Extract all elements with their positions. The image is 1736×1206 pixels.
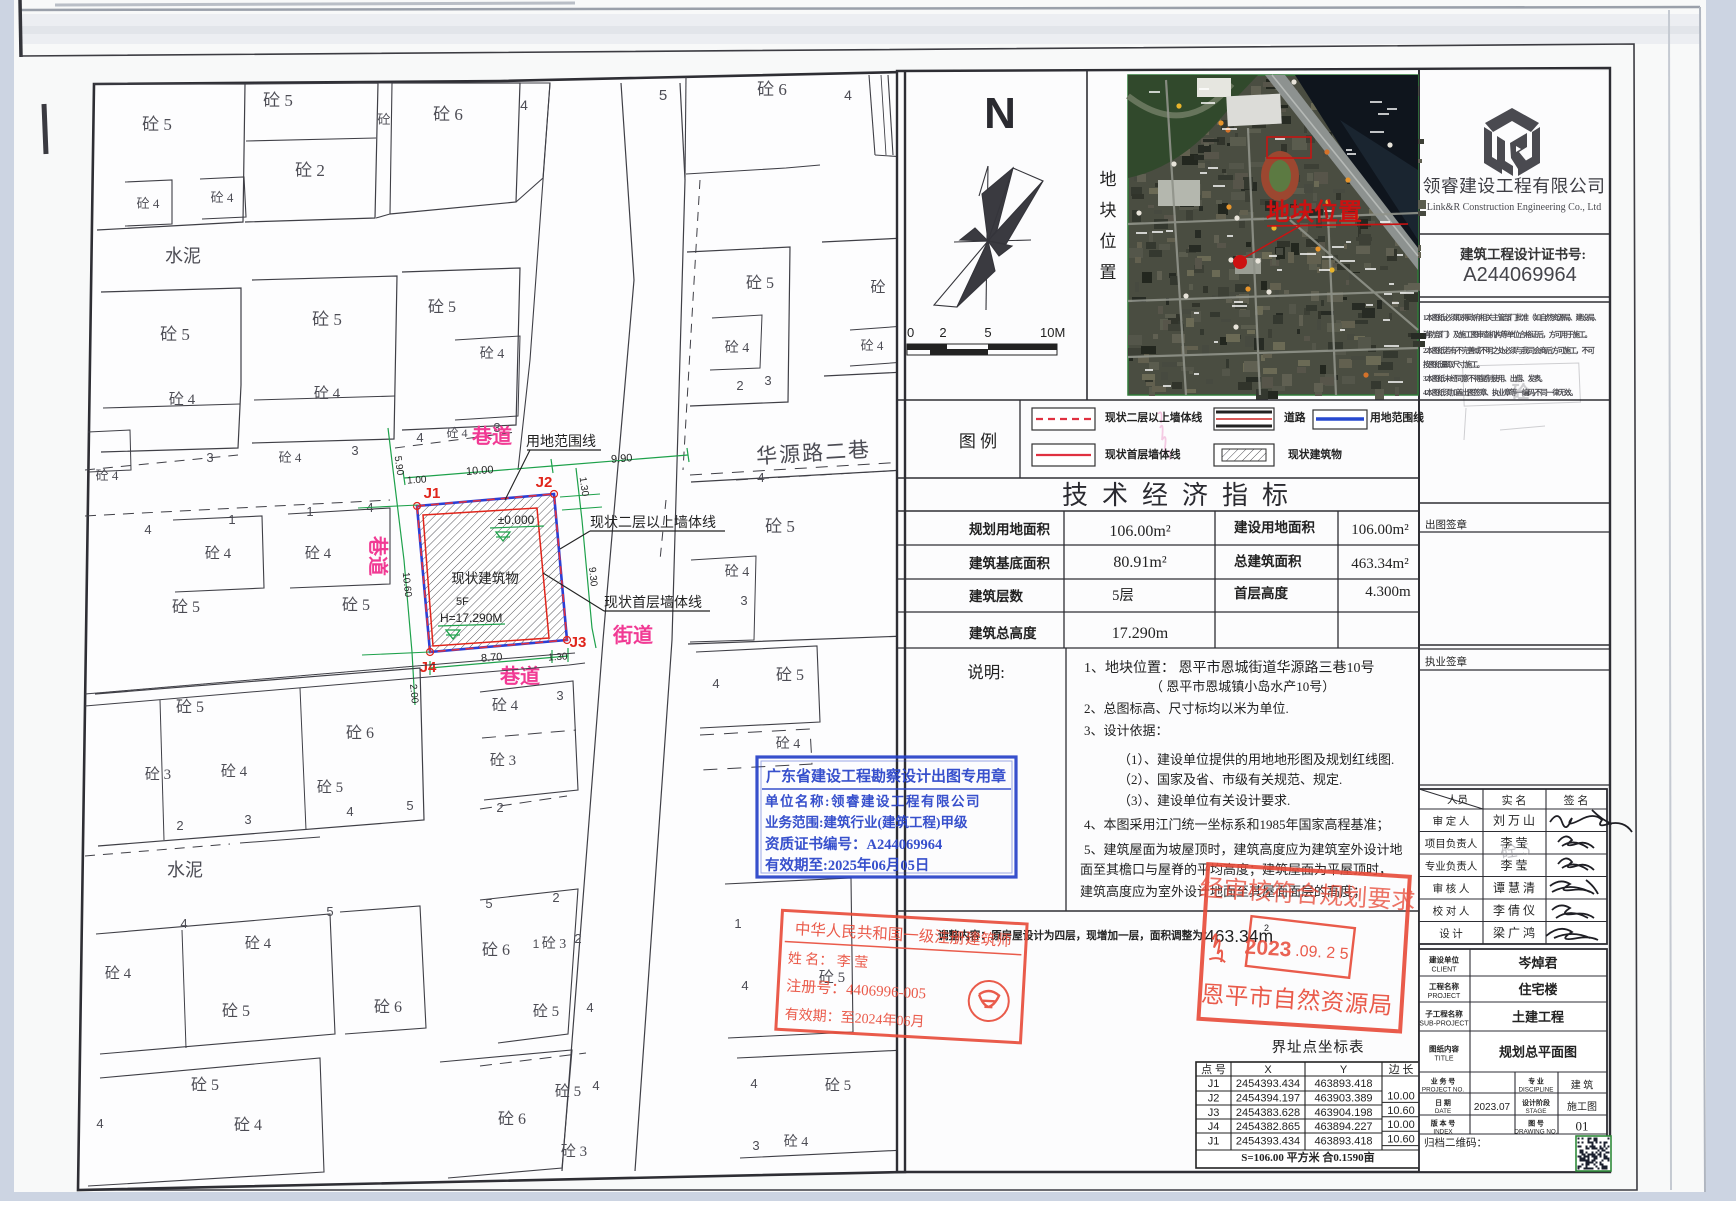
svg-text:砼 4: 砼 4 (211, 187, 234, 206)
svg-text:校 对 人: 校 对 人 (1433, 903, 1470, 918)
svg-text:4: 4 (750, 1076, 757, 1091)
svg-text:S=106.00 平方米 合0.1590亩: S=106.00 平方米 合0.1590亩 (1241, 1149, 1374, 1165)
svg-text:（3）、建设单位有关设计要求.: （3）、建设单位有关设计要求. (1118, 790, 1290, 809)
svg-text:J3: J3 (1208, 1107, 1220, 1119)
svg-text:砼 5: 砼 5 (342, 591, 370, 615)
svg-text:2: 2 (176, 818, 183, 833)
svg-text:2: 2 (736, 378, 743, 393)
svg-text:砼 4: 砼 4 (480, 343, 505, 363)
svg-text:3: 3 (764, 373, 771, 388)
svg-text:人员: 人员 (1447, 792, 1468, 807)
svg-text:1、地块位置： 恩平市恩城街道华源路三巷10号: 1、地块位置： 恩平市恩城街道华源路三巷10号 (1084, 657, 1375, 677)
svg-text:砼 4: 砼 4 (169, 388, 196, 409)
svg-text:STAGE: STAGE (1526, 1108, 1547, 1115)
svg-text:1.30: 1.30 (548, 651, 569, 663)
svg-text:业 务 号: 业 务 号 (1431, 1077, 1456, 1087)
svg-text:出图签章: 出图签章 (1425, 517, 1467, 532)
svg-text:砼 5: 砼 5 (765, 512, 795, 537)
svg-text:砼 5: 砼 5 (428, 293, 456, 317)
svg-text:10.00: 10.00 (1387, 1119, 1415, 1131)
svg-text:4: 4 (416, 430, 423, 445)
svg-text:现状二层以上墙体线: 现状二层以上墙体线 (590, 512, 716, 532)
svg-text:巷道: 巷道 (471, 420, 512, 449)
svg-text:2.00: 2.00 (407, 683, 420, 704)
svg-text:J1: J1 (1208, 1136, 1220, 1148)
svg-text:3: 3 (351, 443, 358, 458)
svg-text:砼 5: 砼 5 (222, 997, 250, 1021)
svg-text:建筑工程设计证书号:: 建筑工程设计证书号: (1459, 243, 1586, 263)
svg-text:边 长: 边 长 (1389, 1061, 1414, 1077)
svg-text:1: 1 (228, 512, 235, 527)
svg-text:建筑基底面积: 建筑基底面积 (968, 552, 1050, 572)
svg-text:2454393.434: 2454393.434 (1236, 1136, 1300, 1148)
svg-text:领睿建设工程有限公司: 领睿建设工程有限公司 (1423, 172, 1606, 198)
svg-text:巷道: 巷道 (365, 535, 394, 576)
svg-text:砼 4: 砼 4 (305, 542, 332, 563)
svg-text:SUB-PROJECT: SUB-PROJECT (1419, 1021, 1469, 1028)
svg-text:土建工程: 土建工程 (1512, 1007, 1564, 1026)
svg-text:砼: 砼 (1512, 378, 1529, 403)
svg-text:2、总图标高、尺寸标均以米为单位.: 2、总图标高、尺寸标均以米为单位. (1084, 698, 1289, 717)
svg-text:首层高度: 首层高度 (1234, 582, 1288, 602)
svg-text:5F: 5F (456, 596, 469, 608)
svg-text:建设单位: 建设单位 (1428, 955, 1459, 966)
svg-text:4: 4 (592, 1078, 599, 1093)
svg-text:砼 2: 砼 2 (295, 156, 325, 181)
svg-text:界址点坐标表: 界址点坐标表 (1272, 1036, 1365, 1057)
svg-text:日 期: 日 期 (1435, 1098, 1451, 1108)
svg-text:砼 5: 砼 5 (176, 693, 204, 717)
svg-text:地块位置: 地块位置 (1266, 192, 1362, 227)
svg-text:（ 恩平市恩城镇小岛水产10号）: （ 恩平市恩城镇小岛水产10号） (1150, 676, 1335, 695)
svg-text:106.00m²: 106.00m² (1109, 523, 1170, 540)
svg-text:Link&R Construction Engineerin: Link&R Construction Engineering Co., Ltd (1427, 202, 1601, 213)
svg-text:2454394.197: 2454394.197 (1236, 1092, 1300, 1104)
svg-text:施工图: 施工图 (1567, 1098, 1597, 1113)
svg-text:砼: 砼 (377, 109, 390, 128)
svg-text:J1: J1 (1208, 1078, 1220, 1090)
svg-text:砼 4: 砼 4 (137, 193, 160, 212)
svg-text:J2: J2 (536, 474, 553, 491)
svg-text:DRAWING NO.: DRAWING NO. (1514, 1129, 1557, 1136)
svg-text:砼 4: 砼 4 (245, 932, 272, 953)
svg-text:2023: 2023 (1244, 936, 1292, 962)
svg-text:审 定 人: 审 定 人 (1433, 813, 1470, 828)
svg-text:现状首层墙体线: 现状首层墙体线 (604, 592, 702, 612)
svg-text:刘 万 山: 刘 万 山 (1493, 811, 1535, 828)
svg-text:图 号: 图 号 (1528, 1119, 1544, 1129)
svg-text:4: 4 (757, 470, 764, 485)
svg-text:地: 地 (1100, 165, 1117, 190)
svg-text:归档二维码：: 归档二维码： (1424, 1135, 1487, 1150)
svg-text:专业负责人: 专业负责人 (1425, 858, 1478, 873)
svg-text:块: 块 (1100, 196, 1117, 221)
svg-text:业务范围:建筑行业(建筑工程)甲级: 业务范围:建筑行业(建筑工程)甲级 (765, 811, 968, 831)
svg-text:463.34m²: 463.34m² (1351, 556, 1409, 572)
svg-text:2454383.628: 2454383.628 (1236, 1107, 1300, 1119)
svg-text:4: 4 (741, 978, 748, 993)
svg-text:3: 3 (556, 688, 563, 703)
svg-text:单位名称:领睿建设工程有限公司: 单位名称:领睿建设工程有限公司 (765, 790, 981, 810)
svg-text:J4: J4 (420, 659, 437, 676)
svg-text:17.290m: 17.290m (1112, 625, 1169, 642)
svg-text:资质证书编号：A244069964: 资质证书编号：A244069964 (765, 833, 942, 854)
svg-text:砼 5: 砼 5 (533, 1000, 559, 1021)
svg-text:4: 4 (586, 1000, 593, 1015)
svg-text:4: 4 (96, 1116, 103, 1131)
svg-text:（1）、建设单位提供的用地地形图及规划红线图.: （1）、建设单位提供的用地地形图及规划红线图. (1118, 749, 1394, 768)
svg-text:建筑总高度: 建筑总高度 (968, 622, 1037, 642)
svg-text:PROJECT: PROJECT (1428, 993, 1461, 1000)
svg-text:CLIENT: CLIENT (1432, 967, 1458, 974)
svg-text:现状建筑物: 现状建筑物 (451, 567, 519, 587)
svg-text:总建筑面积: 总建筑面积 (1234, 550, 1302, 570)
svg-text:砼 6: 砼 6 (757, 75, 787, 100)
svg-text:审 核 人: 审 核 人 (1433, 881, 1470, 896)
svg-text:01: 01 (1576, 1119, 1589, 1134)
svg-text:PROJECT NO.: PROJECT NO. (1422, 1087, 1464, 1094)
svg-text:砼 3: 砼 3 (145, 763, 171, 784)
svg-text:建筑层数: 建筑层数 (968, 585, 1023, 605)
svg-text:1: 1 (306, 504, 313, 519)
svg-text:2: 2 (939, 325, 946, 340)
svg-text:J3: J3 (570, 634, 587, 651)
svg-text:砼 4: 砼 4 (776, 733, 801, 753)
svg-text:3: 3 (752, 1138, 759, 1153)
svg-text:谭 慧 清: 谭 慧 清 (1493, 879, 1535, 896)
svg-text:10.00: 10.00 (466, 464, 494, 478)
svg-text:4: 4 (346, 804, 353, 819)
svg-text:砼 5: 砼 5 (746, 269, 774, 293)
svg-text:消防部门）及施工图审查机构等单位合格证后，方可用于施工。: 消防部门）及施工图审查机构等单位合格证后，方可用于施工。 (1423, 330, 1591, 340)
svg-text:砼 3: 砼 3 (490, 749, 516, 770)
svg-text:设计阶段: 设计阶段 (1522, 1098, 1550, 1108)
svg-text:463893.418: 463893.418 (1314, 1078, 1372, 1090)
svg-text:建设用地面积: 建设用地面积 (1233, 516, 1315, 536)
svg-text:砼: 砼 (870, 276, 885, 297)
svg-text:规划用地面积: 规划用地面积 (969, 518, 1050, 538)
svg-text:砼 3: 砼 3 (561, 1140, 587, 1161)
svg-text:砼 6: 砼 6 (482, 936, 510, 960)
svg-text:9.30: 9.30 (586, 566, 599, 587)
svg-text:2: 2 (552, 890, 559, 905)
svg-text:4: 4 (144, 522, 151, 537)
svg-text:李 倩 仪: 李 倩 仪 (1493, 901, 1535, 918)
svg-text:10.60: 10.60 (1387, 1105, 1415, 1117)
svg-text:106.00m²: 106.00m² (1351, 522, 1409, 538)
svg-text:463903.389: 463903.389 (1314, 1092, 1372, 1104)
svg-text:4: 4 (844, 87, 852, 103)
svg-text:版 本 号: 版 本 号 (1431, 1119, 1456, 1129)
svg-text:10M: 10M (1040, 325, 1065, 340)
svg-text:463904.198: 463904.198 (1314, 1107, 1372, 1119)
svg-text:9.90: 9.90 (611, 452, 633, 465)
svg-text:10.00: 10.00 (1387, 1090, 1415, 1102)
svg-text:水泥: 水泥 (165, 242, 201, 268)
svg-text:5层: 5层 (1112, 584, 1134, 605)
svg-text:砼 5: 砼 5 (555, 1080, 581, 1101)
svg-text:80.91m²: 80.91m² (1113, 554, 1166, 571)
svg-text:砼 4: 砼 4 (221, 760, 248, 781)
svg-text:砼 6: 砼 6 (498, 1105, 526, 1129)
svg-text:0: 0 (907, 325, 914, 340)
svg-text:街道: 街道 (612, 619, 653, 648)
svg-text:4: 4 (180, 916, 187, 931)
svg-text:砼 4: 砼 4 (725, 337, 750, 357)
svg-text:4.本图纸须加盖出图签章、执业章等一编码,不同一律无效。: 4.本图纸须加盖出图签章、执业章等一编码,不同一律无效。 (1423, 388, 1576, 398)
svg-text:5: 5 (659, 87, 667, 104)
svg-text:专 业: 专 业 (1528, 1077, 1544, 1087)
svg-text:J4: J4 (1208, 1121, 1220, 1133)
svg-text:岑焯君: 岑焯君 (1517, 953, 1557, 972)
svg-text:按图纸量取尺寸施工。: 按图纸量取尺寸施工。 (1423, 360, 1483, 370)
svg-text:砼 5: 砼 5 (142, 110, 172, 135)
svg-text:用地范围线: 用地范围线 (526, 431, 596, 451)
svg-text:砼 4: 砼 4 (784, 1131, 809, 1151)
svg-text:砼 6: 砼 6 (346, 719, 374, 743)
svg-text:2: 2 (1264, 923, 1269, 933)
svg-text:签 名: 签 名 (1564, 792, 1589, 808)
svg-text:H=17.290M: H=17.290M (440, 611, 502, 625)
svg-text:1: 1 (533, 937, 540, 951)
svg-text:砼 4: 砼 4 (205, 542, 232, 563)
svg-text:2: 2 (574, 931, 581, 946)
svg-text:住宅楼: 住宅楼 (1518, 979, 1557, 998)
svg-text:3: 3 (740, 593, 747, 608)
svg-text:砼 4: 砼 4 (105, 962, 132, 983)
svg-text:现状建筑物: 现状建筑物 (1288, 446, 1342, 462)
svg-text:砼 6: 砼 6 (374, 993, 402, 1017)
svg-text:TITLE: TITLE (1434, 1056, 1453, 1063)
svg-text:砼 3: 砼 3 (542, 933, 567, 953)
svg-text:4.300m: 4.300m (1365, 584, 1411, 600)
svg-text:现状二层以上墙体线: 现状二层以上墙体线 (1105, 409, 1202, 425)
svg-text:±0.000: ±0.000 (498, 513, 535, 527)
svg-text:砼 5: 砼 5 (317, 776, 343, 797)
svg-text:置: 置 (1100, 258, 1117, 283)
svg-text:2454382.865: 2454382.865 (1236, 1121, 1300, 1133)
svg-text:图纸内容: 图纸内容 (1429, 1044, 1459, 1055)
svg-text:2454393.434: 2454393.434 (1236, 1078, 1300, 1090)
svg-text:4: 4 (712, 676, 719, 691)
svg-text:用地范围线: 用地范围线 (1370, 409, 1424, 425)
svg-text:2.本图纸若有不完善或不明之处必须与我司会商后方可施工，不可: 2.本图纸若有不完善或不明之处必须与我司会商后方可施工，不可 (1423, 346, 1595, 356)
svg-text:N: N (984, 89, 1016, 138)
svg-text:.09. 2 5: .09. 2 5 (1295, 943, 1349, 963)
svg-text:砼 5: 砼 5 (312, 305, 342, 330)
svg-text:砼 4: 砼 4 (861, 335, 884, 354)
svg-text:5、建筑屋面为坡屋顶时，建筑高度应为建筑室外设计地: 5、建筑屋面为坡屋顶时，建筑高度应为建筑室外设计地 (1084, 839, 1403, 858)
svg-text:砼 4: 砼 4 (314, 382, 341, 403)
svg-text:广东省建设工程勘察设计出图专用章: 广东省建设工程勘察设计出图专用章 (766, 765, 1006, 786)
svg-text:X: X (1264, 1064, 1272, 1076)
svg-text:（2）、国家及省、市级有关规范、规定.: （2）、国家及省、市级有关规范、规定. (1118, 769, 1342, 788)
svg-text:砼 5: 砼 5 (776, 661, 804, 685)
svg-text:现状首层墙体线: 现状首层墙体线 (1105, 446, 1181, 462)
svg-text:A244069964: A244069964 (1463, 264, 1576, 286)
svg-text:DISCIPLINE: DISCIPLINE (1519, 1087, 1554, 1094)
svg-text:砼 5: 砼 5 (172, 593, 200, 617)
svg-text:J1: J1 (424, 485, 441, 502)
svg-text:水泥: 水泥 (167, 856, 203, 882)
svg-text:砼 4: 砼 4 (279, 447, 302, 466)
svg-text:J2: J2 (1208, 1092, 1220, 1104)
svg-text:砼 5: 砼 5 (191, 1071, 219, 1095)
svg-text:砼 4: 砼 4 (725, 561, 750, 581)
svg-text:点 号: 点 号 (1201, 1061, 1226, 1077)
svg-text:463893.418: 463893.418 (1314, 1136, 1372, 1148)
svg-text:砼 4: 砼 4 (446, 424, 467, 441)
svg-text:位: 位 (1100, 227, 1117, 252)
svg-text:有效期至:2025年06月05日: 有效期至:2025年06月05日 (765, 854, 929, 875)
svg-text:设 计: 设 计 (1439, 926, 1463, 941)
svg-text:砼 5: 砼 5 (160, 320, 190, 345)
svg-text:3、设计依据：: 3、设计依据： (1084, 720, 1169, 739)
svg-text:2: 2 (496, 800, 503, 815)
svg-text:1.本图纸必须取得政府相关主管部门批准（如自然资源局、建设局: 1.本图纸必须取得政府相关主管部门批准（如自然资源局、建设局、 (1423, 313, 1600, 323)
svg-text:子工程名称: 子工程名称 (1425, 1009, 1463, 1020)
svg-text:砼 4: 砼 4 (234, 1111, 262, 1135)
svg-text:说明:: 说明: (967, 659, 1005, 683)
svg-text:DATE: DATE (1435, 1108, 1451, 1115)
svg-text:463894.227: 463894.227 (1314, 1121, 1372, 1133)
svg-text:建 筑: 建 筑 (1571, 1077, 1594, 1092)
svg-text:工程名称: 工程名称 (1429, 981, 1459, 992)
svg-text:5: 5 (485, 896, 492, 911)
svg-text:砼 5: 砼 5 (263, 86, 293, 111)
svg-text:砼 6: 砼 6 (433, 100, 463, 125)
svg-text:5: 5 (326, 904, 333, 919)
svg-text:10.60: 10.60 (1387, 1134, 1415, 1146)
svg-text:砼 4: 砼 4 (492, 694, 519, 715)
svg-text:3: 3 (244, 812, 251, 827)
svg-text:技术经济指标: 技术经济指标 (1062, 475, 1302, 512)
svg-text:巷道: 巷道 (499, 660, 540, 689)
svg-text:项目负责人: 项目负责人 (1425, 836, 1478, 851)
svg-text:5: 5 (406, 798, 413, 813)
svg-text:砼 5: 砼 5 (825, 1074, 851, 1095)
svg-text:Y: Y (1340, 1064, 1348, 1076)
svg-text:规划总平面图: 规划总平面图 (1499, 1042, 1577, 1061)
svg-text:图 例: 图 例 (959, 427, 997, 452)
svg-text:4: 4 (520, 97, 528, 113)
svg-text:5: 5 (984, 325, 991, 340)
svg-text:4、本图采用江门统一坐标系和1985年国家高程基准；: 4、本图采用江门统一坐标系和1985年国家高程基准； (1084, 814, 1390, 833)
svg-text:梁 广 鸿: 梁 广 鸿 (1493, 924, 1535, 941)
svg-text:实 名: 实 名 (1502, 792, 1527, 808)
svg-text:砼 5: 砼 5 (1498, 834, 1531, 863)
svg-text:道路: 道路 (1284, 409, 1306, 425)
svg-text:1: 1 (734, 916, 741, 931)
svg-text:2023.07: 2023.07 (1474, 1102, 1511, 1113)
svg-text:执业签章: 执业签章 (1425, 654, 1467, 669)
